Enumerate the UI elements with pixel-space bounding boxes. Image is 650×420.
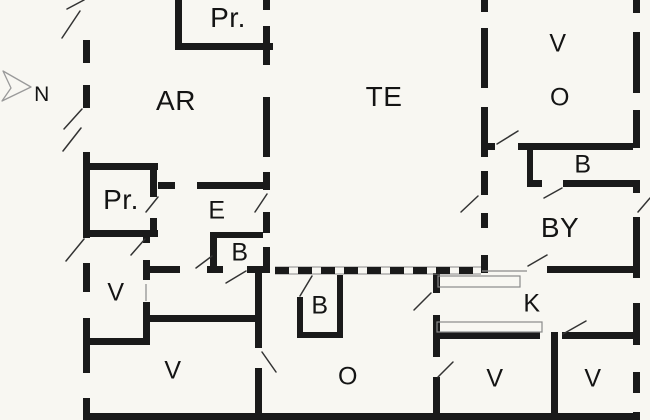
room-label-b-northeast: B xyxy=(574,151,591,180)
kitchen-counter-top xyxy=(438,276,520,287)
room-label-o-south: O xyxy=(338,363,358,392)
room-label-o-northeast: O xyxy=(550,84,570,113)
room-label-by: BY xyxy=(541,212,579,244)
room-label-v-south-1: V xyxy=(486,365,503,394)
room-label-b-hall: B xyxy=(231,239,248,268)
compass-north-arrow-icon xyxy=(2,71,31,101)
room-label-ar: AR xyxy=(156,85,196,117)
floor-plan: Pr. AR TE V O B Pr. E B BY V B V O K V V… xyxy=(0,0,650,420)
kitchen-counter-bottom xyxy=(437,322,542,332)
terrace-glass-wall xyxy=(275,267,481,274)
room-label-pr-west: Pr. xyxy=(103,184,139,216)
room-label-v-south-2: V xyxy=(584,365,601,394)
room-label-k-kitchen: K xyxy=(523,290,540,319)
room-label-e-hall: E xyxy=(208,197,225,226)
room-label-v-southwest: V xyxy=(164,357,181,386)
thin-lines xyxy=(146,271,542,332)
floor-plan-walls xyxy=(0,0,650,420)
room-label-v-west: V xyxy=(107,279,124,308)
compass-label: N xyxy=(34,83,50,107)
room-label-pr-north: Pr. xyxy=(210,2,246,34)
room-label-te: TE xyxy=(366,81,403,113)
room-label-v-northeast: V xyxy=(549,30,566,59)
room-label-b-center: B xyxy=(311,292,328,321)
